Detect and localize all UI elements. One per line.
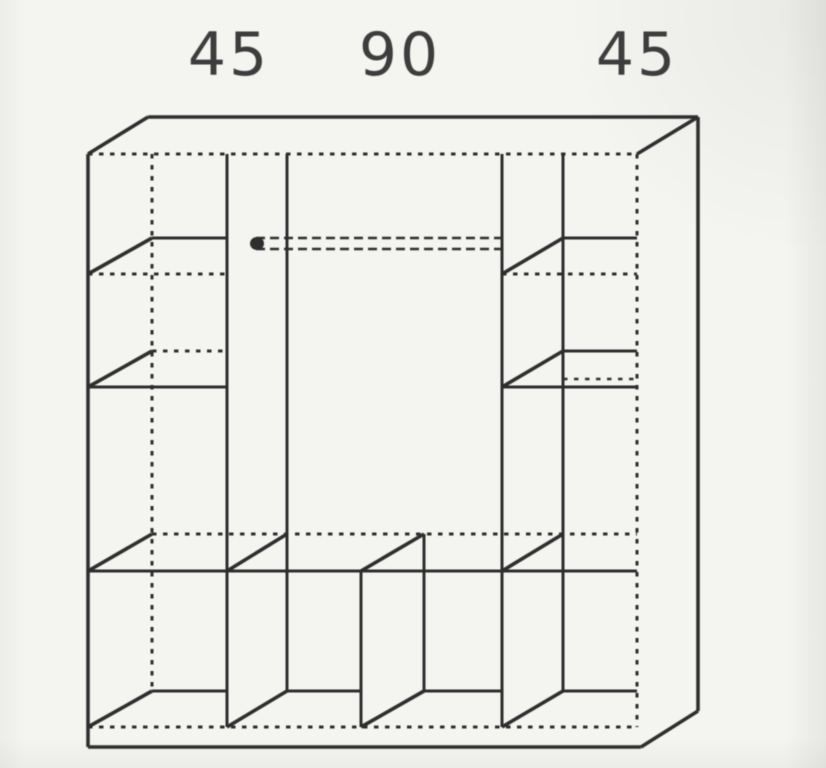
cabinet-outline [88, 117, 698, 747]
right-shelf-1-side [502, 238, 563, 274]
bottom-right-depth-edge [641, 711, 698, 747]
left-shelf-1-side [88, 238, 152, 274]
cabinet-drawing [88, 117, 698, 747]
bottom-middle-divider [361, 534, 424, 727]
full-width-shelf [88, 534, 637, 571]
dimension-label-left: 45 [188, 20, 270, 90]
right-column-shelves [502, 238, 637, 387]
dimension-label-middle: 90 [359, 20, 441, 90]
top-right-depth-edge [637, 117, 698, 154]
dimension-labels: 45 90 45 [188, 20, 678, 90]
left-column-shelves [88, 238, 227, 387]
dimension-label-right: 45 [596, 20, 678, 90]
scanned-page: 45 90 45 [0, 0, 826, 768]
rail-end-cap [250, 237, 264, 250]
wardrobe-diagram: 45 90 45 [0, 0, 826, 768]
right-shelf-2-side [502, 351, 563, 387]
right-partition [502, 154, 563, 727]
left-shelf-2-side [88, 351, 152, 387]
top-left-depth-edge [88, 117, 148, 154]
